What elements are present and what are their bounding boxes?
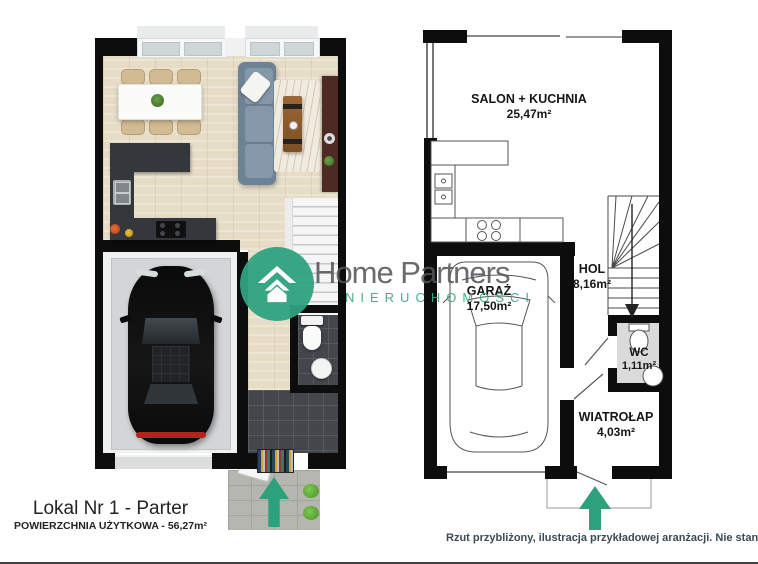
kitchen-2d	[431, 141, 563, 242]
burner	[175, 223, 180, 228]
wall-bottom	[308, 453, 346, 469]
coffee-table	[283, 96, 302, 152]
table-plant	[151, 94, 164, 107]
car-windshield	[142, 318, 200, 344]
house-icon	[254, 262, 300, 304]
window-glass	[284, 42, 314, 56]
car-sunroof	[152, 346, 190, 382]
room-name: HOL	[556, 262, 628, 277]
room-name: WIATROŁAP	[566, 410, 666, 425]
toilet-bowl	[303, 326, 321, 350]
wall-living-garage	[95, 240, 240, 252]
burner	[160, 223, 165, 228]
room-area: 4,03m²	[566, 425, 666, 440]
car-rear-window	[144, 384, 198, 404]
dining-chair	[121, 119, 145, 135]
floorplan-page: SALON + KUCHNIA 25,47m² GARAŻ 17,50m² HO…	[0, 0, 758, 564]
disclaimer: Rzut przybliżony, ilustracja przykładowe…	[446, 532, 758, 544]
floor-flowers	[125, 229, 133, 237]
sink-basin	[115, 182, 130, 193]
dining-chair	[121, 69, 145, 85]
dining-chair	[149, 69, 173, 85]
porch-2d	[547, 479, 651, 530]
room-label-wiatrolap: WIATROŁAP 4,03m²	[566, 410, 666, 440]
garage-door-sill	[115, 455, 212, 469]
kitchen-counter	[110, 143, 190, 172]
car-top-view	[128, 266, 214, 444]
room-label-wc: WC 1,11m²	[603, 346, 675, 373]
wall-bottom	[212, 453, 262, 469]
cooktop	[156, 221, 186, 238]
entry-floor	[248, 390, 338, 453]
entrance-arrow-icon	[579, 486, 611, 530]
cup	[289, 121, 298, 130]
doormat	[257, 449, 294, 473]
coffee-table-band	[283, 104, 302, 109]
usable-area: POWIERZCHNIA UŻYTKOWA - 56,27m²	[7, 520, 214, 532]
window-glass	[250, 42, 280, 56]
coffee-table-band	[283, 139, 302, 144]
room-label-hol: HOL 8,16m²	[556, 262, 628, 292]
window-sill	[137, 26, 225, 38]
burner	[175, 231, 180, 236]
wall-gap	[225, 38, 245, 56]
room-name: SALON + KUCHNIA	[454, 92, 604, 107]
window	[245, 38, 320, 58]
room-name: WC	[603, 346, 675, 360]
watermark-brand: Home Partners	[314, 255, 509, 291]
sofa-cushion	[245, 144, 273, 178]
wall-bottom	[95, 453, 115, 469]
sink-basin	[115, 193, 130, 204]
shelf-plant	[324, 156, 334, 166]
sink-icon	[311, 358, 332, 379]
dining-chair	[149, 119, 173, 135]
room-label-salon-kuchnia: SALON + KUCHNIA 25,47m²	[454, 92, 604, 122]
window	[137, 38, 227, 58]
unit-title: Lokal Nr 1 - Parter	[18, 498, 203, 520]
speaker	[324, 133, 335, 144]
dining-chair	[177, 119, 201, 135]
dining-chair	[177, 69, 201, 85]
bush	[303, 506, 319, 520]
watermark-subtitle: NIERUCHOMOŚCI	[345, 290, 535, 305]
window-sill	[245, 26, 318, 38]
sofa-cushion	[245, 106, 273, 144]
window-glass	[184, 42, 222, 56]
watermark: Home Partners NIERUCHOMOŚCI	[238, 245, 538, 325]
room-area: 8,16m²	[556, 277, 628, 292]
home-partners-logo-icon	[240, 247, 314, 321]
floor-flowers	[110, 224, 120, 234]
staircase-2d	[608, 196, 659, 318]
bush	[303, 484, 319, 498]
room-area: 1,11m²	[603, 360, 675, 373]
room-area: 25,47m²	[454, 107, 604, 122]
burner	[160, 231, 165, 236]
window-glass	[142, 42, 180, 56]
car-taillight	[136, 432, 206, 438]
kitchen-sink	[113, 180, 131, 205]
wc-wall-bottom	[290, 385, 338, 393]
